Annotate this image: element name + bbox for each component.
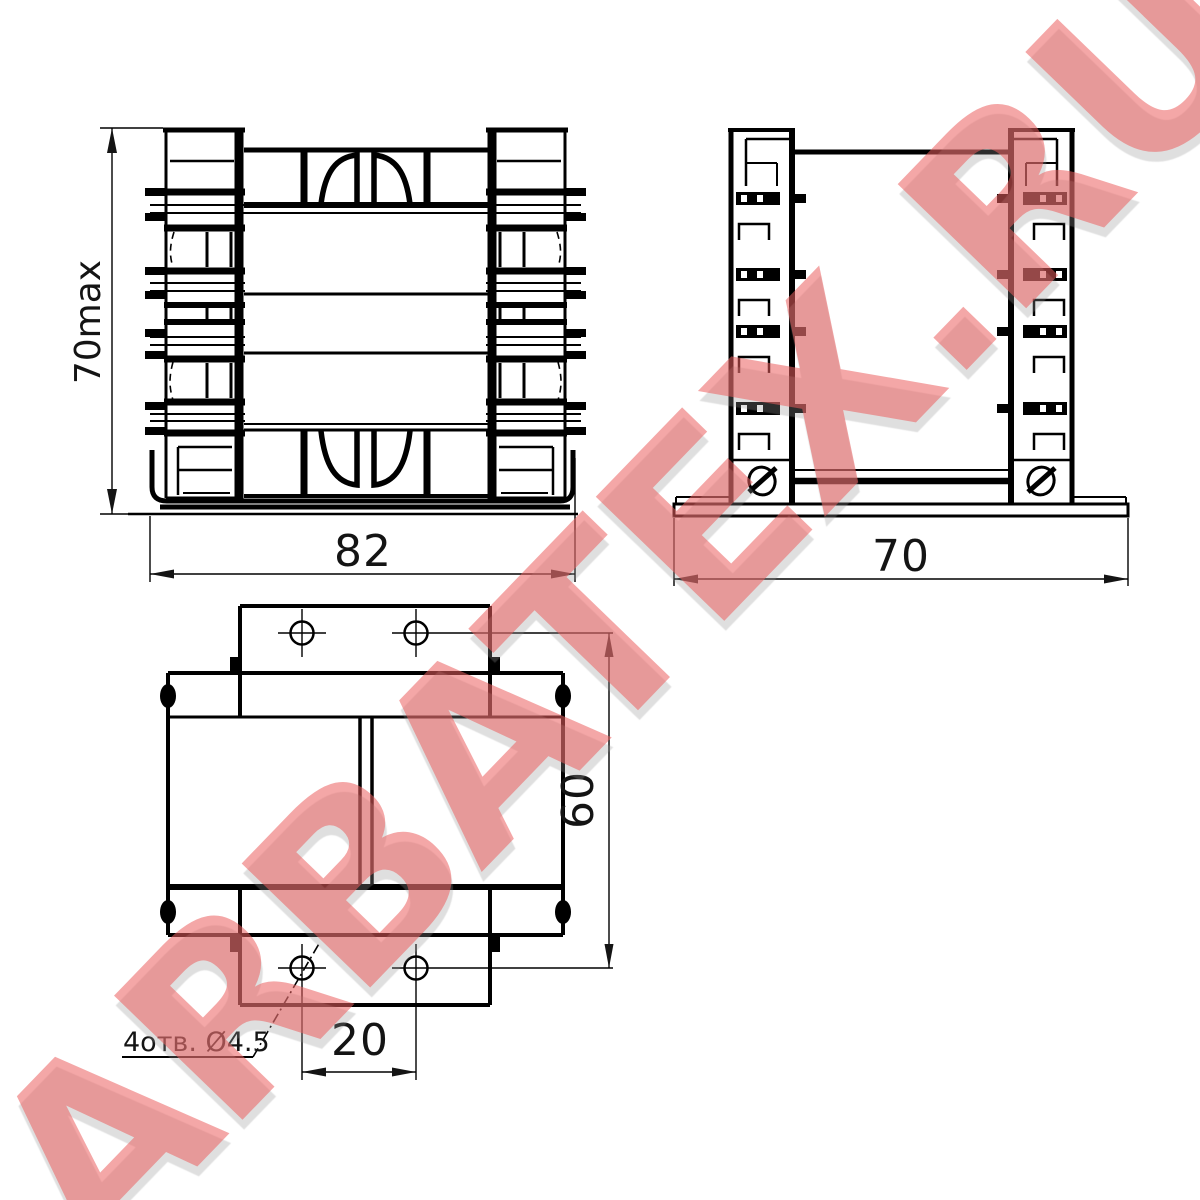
side-view [674,128,1128,586]
front-right-pins [565,188,586,435]
top-height-dimension-label: 60 [553,771,604,829]
top-body [160,606,571,1005]
side-right-lugs [997,192,1067,450]
top-hole-spacing-dimension [302,1068,416,1077]
side-core [792,152,1011,481]
top-view [122,606,614,1080]
top-holes-note-label: 4отв. Ø4.5 [123,1027,270,1058]
top-height-dimension [605,633,614,968]
front-left-terminal-stack [145,128,245,500]
front-left-pins [145,188,166,435]
technical-drawing: 70max 82 70 60 20 4отв. Ø4.5 [0,0,1200,1200]
front-width-dimension-label: 82 [334,526,392,577]
front-view [100,128,586,582]
front-core [244,150,488,496]
front-height-dimension-label: 70max [68,260,109,384]
side-base-plate [674,497,1128,516]
side-left-lugs [736,192,806,450]
side-width-dimension-label: 70 [872,531,930,582]
front-right-terminal-stack [486,128,586,500]
drawing-canvas: 70max 82 70 60 20 4отв. Ø4.5 ARBATEX.RU [0,0,1200,1200]
top-hole-spacing-label: 20 [331,1015,389,1066]
